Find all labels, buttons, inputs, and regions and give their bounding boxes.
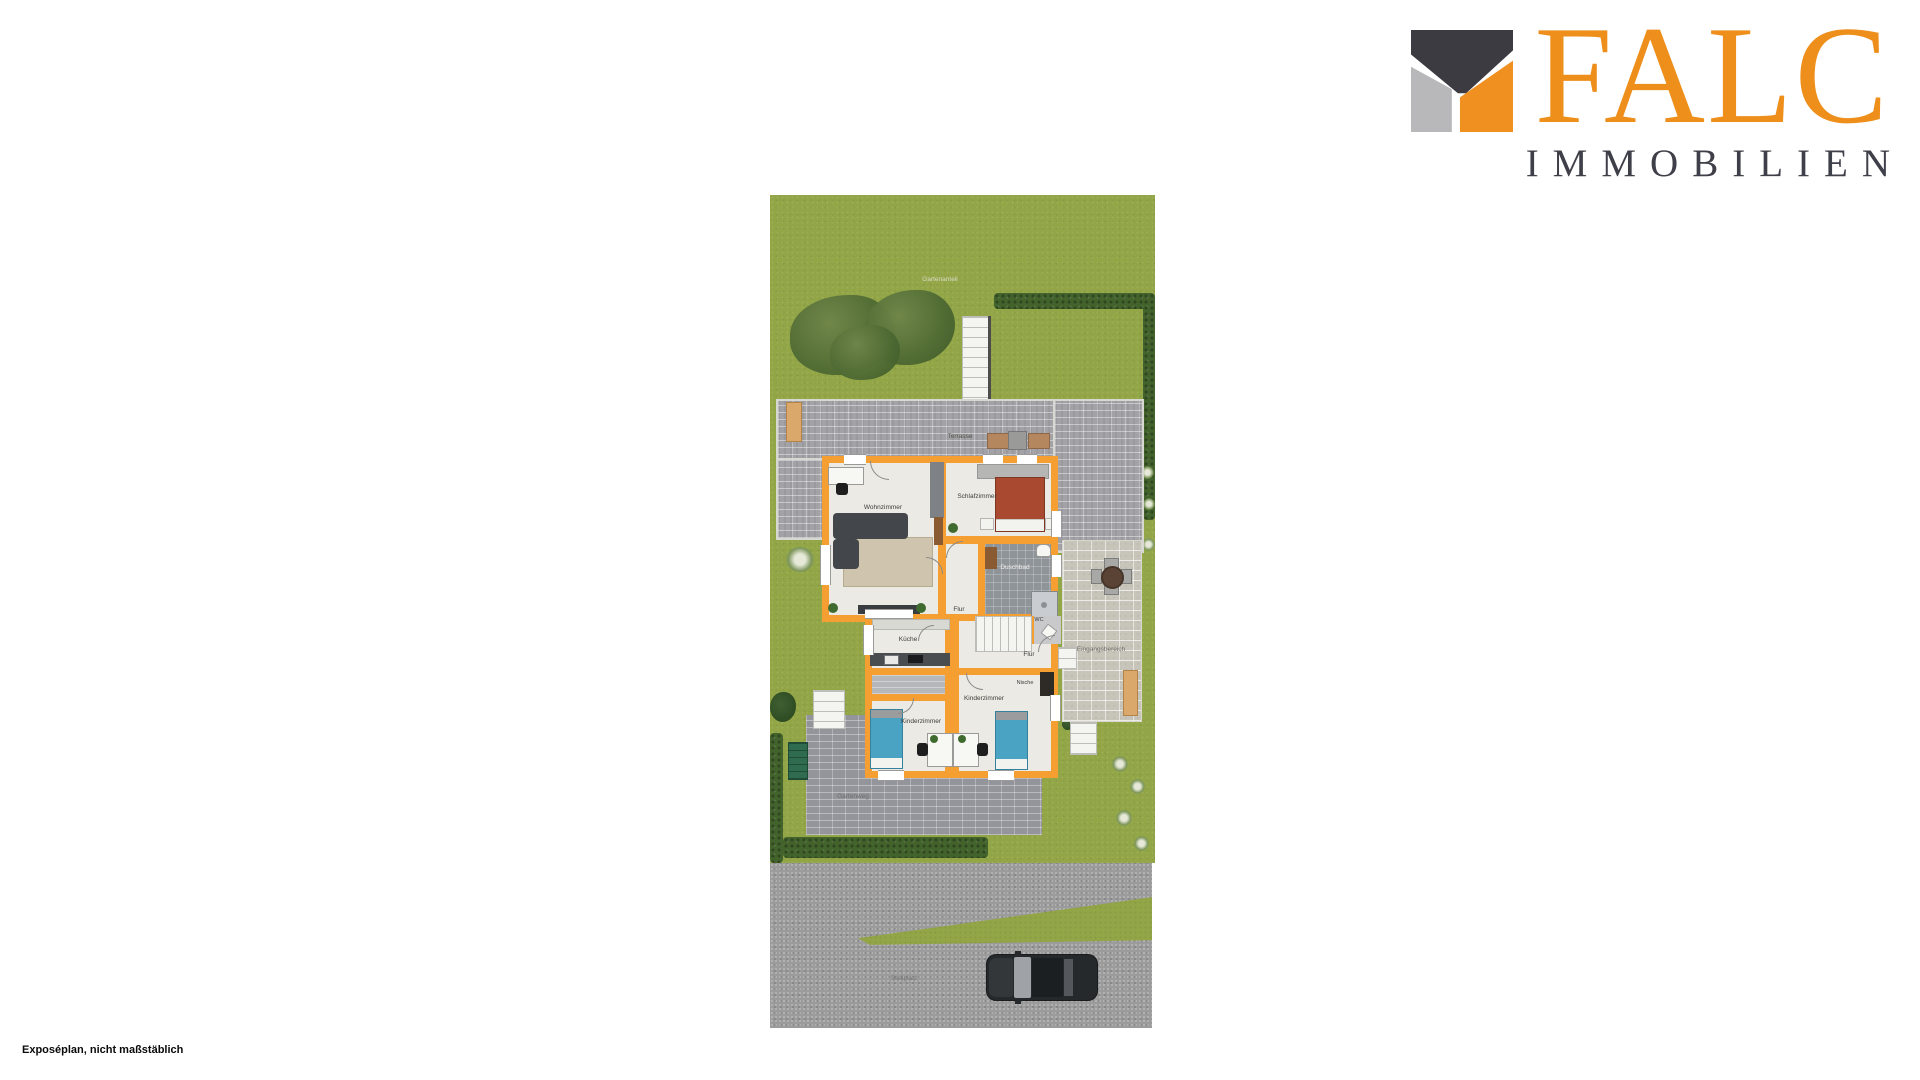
window [1051, 511, 1062, 537]
window [1017, 454, 1037, 465]
shower [1031, 591, 1058, 619]
bench [1123, 670, 1138, 716]
kitchen-counter [870, 653, 950, 666]
bench [786, 402, 802, 442]
entry-patio-label: Eingangsbereich [1064, 646, 1138, 653]
falc-logo: FALC IMMOBILIEN [1411, 24, 1890, 186]
nightstand [980, 518, 994, 530]
kitchen-upper-cabinets [872, 619, 950, 630]
flower-bush [1143, 498, 1155, 510]
car-windshield [1014, 957, 1031, 998]
desk-chair [977, 743, 988, 756]
terrace-right-wing [1053, 399, 1144, 553]
room-label-kitchen: Küche [888, 636, 928, 643]
bed-head [996, 712, 1027, 720]
bed-foot [996, 759, 1027, 769]
flower-bush [785, 547, 815, 572]
window [983, 454, 1003, 465]
niche-closet [1040, 672, 1054, 696]
garden-label: Gartenanteil [885, 276, 995, 283]
dining-table-round [1101, 566, 1124, 589]
stove [908, 655, 923, 663]
plant [930, 735, 938, 743]
room-label-bath: Duschbad [990, 564, 1040, 571]
sink [884, 655, 899, 665]
room-label-wc: WC [1032, 617, 1046, 623]
shower-drain [1041, 602, 1047, 608]
patio-chair [987, 433, 1009, 449]
window [1050, 695, 1061, 721]
parking-label: Stellplatz [874, 975, 934, 982]
brand-name: FALC [1535, 24, 1890, 128]
hedge-left [770, 733, 783, 863]
car-roof [1032, 958, 1063, 997]
flower-bush [1130, 779, 1145, 794]
bed-foot [996, 519, 1044, 531]
fireplace [934, 517, 943, 545]
retaining-wall [988, 316, 991, 403]
terrace-label: Terrasse [930, 433, 990, 440]
car-rear-window [1064, 959, 1073, 996]
double-bed [995, 477, 1045, 532]
garden-path [806, 775, 1042, 835]
desk-chair [917, 743, 928, 756]
car-mirror [1015, 951, 1021, 955]
flower-bush [1112, 756, 1128, 772]
hedge-right [1143, 293, 1155, 520]
plant [948, 523, 958, 533]
garden-bench [788, 742, 808, 780]
hedge-top [994, 293, 1152, 309]
room-label-kids2: Kinderzimmer [953, 695, 1015, 702]
window [1051, 555, 1062, 577]
plan-disclaimer: Exposéplan, nicht maßstäblich [22, 1044, 183, 1056]
garden-stairs [962, 316, 990, 405]
room-label-living: Wohnzimmer [853, 504, 913, 511]
window [820, 545, 831, 585]
logo-row: FALC [1411, 24, 1890, 132]
flower-bush [1116, 810, 1132, 826]
plant [828, 603, 838, 613]
window [878, 770, 904, 781]
patio-chair [1028, 433, 1050, 449]
flower-bush [1134, 836, 1149, 851]
kids-desk [953, 733, 979, 767]
car [987, 955, 1097, 1000]
falc-logo-mark-icon [1411, 30, 1513, 132]
toilet [1036, 544, 1051, 557]
driveway [770, 863, 1152, 1028]
car-hood [989, 958, 1013, 997]
side-stairs [813, 690, 845, 729]
site-plan: Gartenanteil Terrasse Eingangsbereich Ga… [770, 195, 1155, 1028]
hedge-bottom [783, 837, 988, 858]
chimney [930, 462, 944, 518]
car-mirror [1015, 1000, 1021, 1004]
brand-subtitle: IMMOBILIEN [1526, 141, 1904, 186]
kids-bed [995, 711, 1028, 770]
sofa-chaise [833, 539, 859, 569]
room-label-niche: Nische [1012, 680, 1038, 686]
interior-stairs [975, 616, 1032, 652]
window [863, 625, 874, 655]
patio-table [1008, 431, 1027, 450]
window [865, 609, 913, 619]
plant [958, 735, 966, 743]
room-label-hall-lower: Flur [1018, 651, 1040, 658]
room-label-kids1: Kinderzimmer [890, 718, 952, 725]
sofa [833, 513, 908, 539]
window [988, 770, 1014, 781]
patio-stairs [1070, 722, 1097, 755]
room-label-bedroom: Schlafzimmer [946, 493, 1008, 500]
desk-chair [836, 483, 848, 495]
path-label: Gartenweg [823, 793, 883, 800]
room-label-hall-upper: Flur [948, 606, 970, 613]
window [844, 454, 866, 465]
bed-foot [871, 758, 902, 768]
plant [916, 603, 926, 613]
